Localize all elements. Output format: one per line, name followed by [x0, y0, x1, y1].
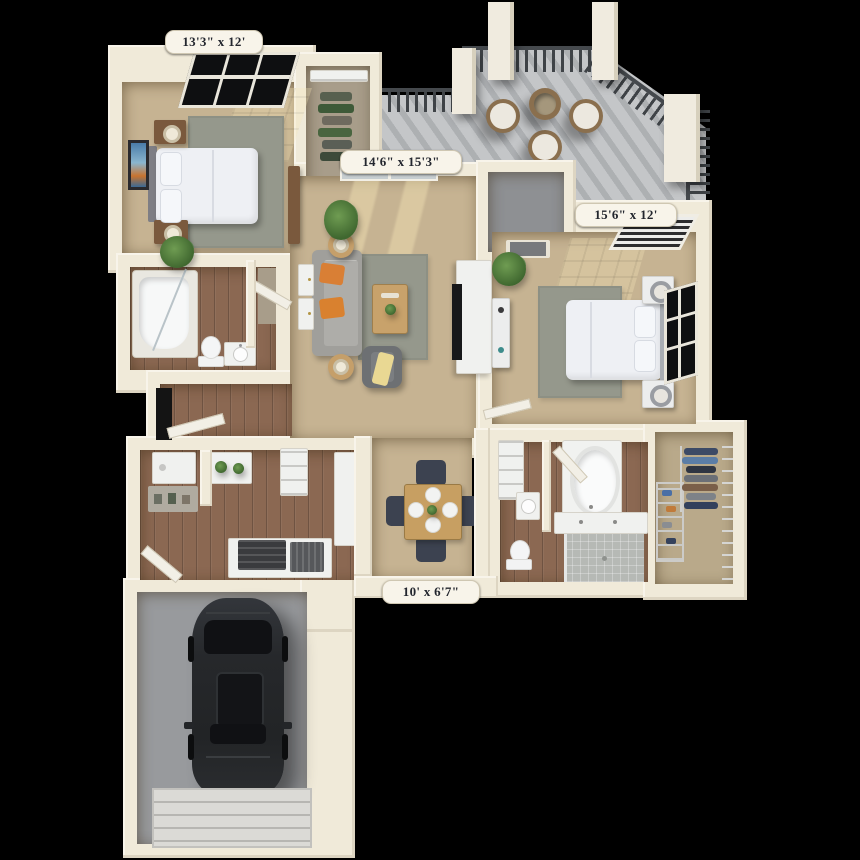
bedroom1-window [178, 52, 300, 108]
armchair [362, 346, 402, 388]
bedroom1-nightstand [154, 120, 186, 144]
sink [521, 499, 536, 514]
patio-chair-cushion [573, 103, 599, 129]
door-knob [308, 278, 311, 281]
shelf-item [168, 493, 176, 504]
wheel [282, 636, 288, 662]
laundry-shelf [148, 486, 198, 512]
duvet-fold [590, 302, 592, 378]
side-table [328, 354, 354, 380]
car [192, 598, 284, 796]
car-roof-window [216, 672, 264, 728]
dresser-item [498, 307, 504, 313]
dimension-label-living-room: 14'6" x 15'3" [340, 150, 462, 174]
wheel [188, 734, 194, 760]
bathroom1-toilet [201, 336, 221, 359]
kitchen-dining-wall [354, 436, 372, 576]
hood-line [206, 612, 270, 614]
oven-appliance [290, 542, 324, 572]
plate [425, 487, 441, 503]
patio-table-top [534, 93, 556, 115]
window-mullion [667, 311, 695, 322]
hanging-clothes [322, 140, 352, 149]
potted-plant [160, 236, 194, 268]
bedroom2-pillow [634, 340, 656, 372]
windshield [204, 620, 272, 654]
dimension-label-bedroom1: 13'3" x 12' [165, 30, 263, 54]
kitchen-upper-cabinet [280, 448, 308, 496]
wire-shelving [722, 440, 733, 580]
bathroom1-nook-wall [246, 260, 256, 348]
rear-window [210, 724, 266, 744]
window-mullion [678, 289, 681, 378]
potted-plant [492, 252, 526, 286]
bedroom1-pillow [160, 152, 182, 186]
dimension-label-bedroom2: 15'6" x 12' [575, 203, 677, 227]
wheel [188, 636, 194, 662]
faucet [239, 344, 242, 347]
patio-table [529, 88, 561, 120]
table-centerpiece [427, 505, 437, 515]
pass-through-shelf [206, 452, 252, 484]
shoes [666, 506, 676, 512]
shoes [662, 522, 672, 528]
window-mullion [246, 55, 263, 105]
washer [152, 452, 196, 484]
shelf-item [182, 495, 190, 504]
patio-chair [486, 99, 520, 133]
tub-faucet [589, 505, 593, 509]
potted-plant [324, 200, 358, 240]
linen-shelves [498, 440, 524, 500]
patio-chair [528, 130, 562, 164]
balcony-railing-top [462, 46, 602, 72]
tub-basin [139, 277, 189, 349]
garage-corner-wall [300, 578, 355, 632]
table-lamp [333, 359, 349, 375]
duvet-fold [212, 150, 214, 222]
window-mullion [189, 75, 290, 79]
plate [425, 517, 441, 533]
closet-door [298, 298, 314, 330]
balcony-post [452, 48, 476, 114]
shelf-plant [233, 463, 244, 474]
shelf-item [154, 494, 162, 504]
folded-clothes [682, 457, 718, 464]
closet1-shelf [310, 70, 368, 82]
hanging-clothes [318, 128, 352, 137]
bedroom2-pillow [634, 306, 656, 338]
patio-chair-cushion [490, 103, 516, 129]
table-lamp [163, 125, 181, 143]
plate [442, 502, 458, 518]
wall-art [128, 140, 149, 190]
laundry-partition-wall [200, 450, 212, 506]
folded-clothes [686, 466, 716, 473]
door-knob [308, 312, 311, 315]
tray [381, 293, 399, 298]
dresser-item [498, 347, 504, 353]
bedroom2-nightstand [642, 380, 674, 408]
faucet [579, 520, 583, 524]
shoes [662, 490, 672, 496]
stove [238, 540, 286, 570]
balcony-post [592, 2, 618, 80]
balcony-post [488, 2, 514, 80]
bedroom1-pillow [160, 189, 182, 223]
folded-clothes [682, 484, 718, 491]
hanging-clothes [322, 116, 352, 125]
bedroom2-dresser [492, 298, 510, 368]
patio-chair-cushion [532, 134, 558, 160]
bathroom2-toilet-tank [506, 559, 532, 570]
throw-pillow [319, 297, 345, 320]
sofa [312, 250, 362, 356]
side-mirror [282, 722, 292, 729]
bathroom2-vanity [554, 512, 648, 534]
trunk-line [206, 756, 270, 758]
window-mullion [213, 55, 230, 105]
dining-chair [416, 460, 446, 486]
centerpiece-plant [385, 304, 396, 315]
hanging-clothes [320, 92, 352, 101]
throw-pillow [319, 262, 346, 285]
balcony-post [664, 94, 700, 182]
tv [452, 284, 462, 360]
garden-tub [562, 440, 622, 516]
closet-door [298, 264, 314, 296]
pedestal-sink-base [516, 492, 540, 520]
wheel [282, 734, 288, 760]
floorplan-scene: 13'3" x 12' 14'6" x 15'3" 15'6" x 12' 10… [0, 0, 860, 860]
shoes [666, 538, 676, 544]
walk-in-shower [564, 534, 644, 582]
bathroom2-partition-wall [542, 440, 551, 532]
hanging-clothes [318, 104, 354, 113]
shower-glass [564, 534, 567, 582]
folded-clothes [684, 502, 718, 509]
dimension-label-patio: 10' x 6'7" [382, 580, 480, 604]
bedroom2-window [664, 281, 698, 385]
patio-chair [569, 99, 603, 133]
window-mullion [667, 340, 695, 351]
closet-rod [680, 446, 682, 512]
folded-clothes [686, 493, 716, 500]
shower-drain [602, 556, 607, 561]
dining-bath2-wall [474, 428, 490, 598]
bedroom1-desk [288, 166, 300, 244]
coffee-table [372, 284, 408, 334]
sink [233, 347, 248, 362]
folded-clothes [684, 475, 718, 482]
side-mirror [184, 722, 194, 729]
plate [408, 502, 424, 518]
table-lamp [650, 385, 672, 407]
faucet [613, 520, 617, 524]
kitchen-counter-right [334, 452, 356, 546]
bathroom1-tub [132, 270, 198, 358]
garage-door [152, 788, 312, 848]
folded-clothes [684, 448, 718, 455]
shelf-plant [215, 461, 227, 473]
washer-dial [159, 464, 166, 471]
